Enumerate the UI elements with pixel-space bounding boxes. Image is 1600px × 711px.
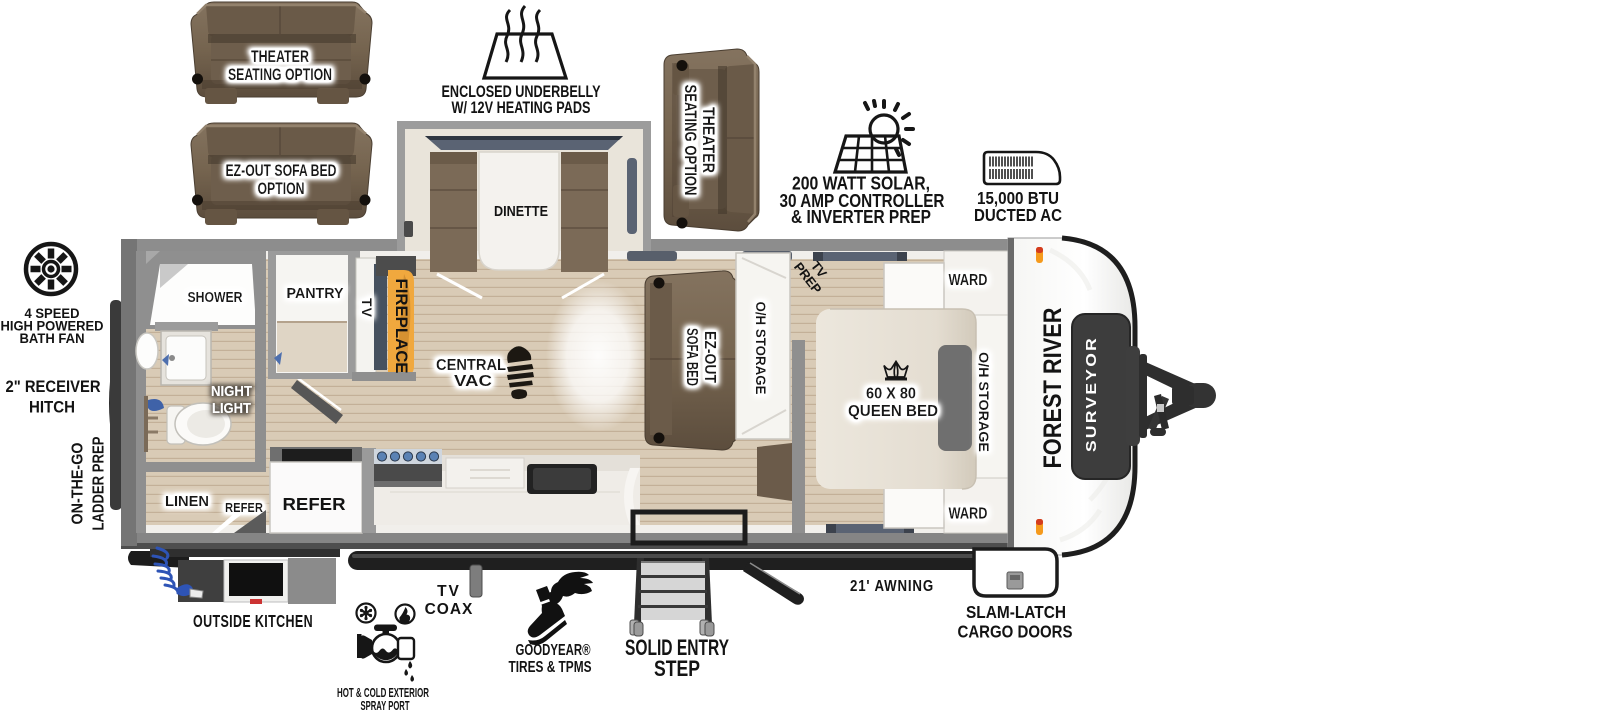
svg-text:DINETTE: DINETTE xyxy=(494,203,548,220)
svg-text:CARGO DOORS: CARGO DOORS xyxy=(958,622,1073,642)
svg-text:REFER: REFER xyxy=(225,501,263,515)
svg-text:REFER: REFER xyxy=(283,494,346,514)
svg-text:SEATING OPTION: SEATING OPTION xyxy=(228,65,332,84)
svg-text:PANTRY: PANTRY xyxy=(287,285,344,302)
svg-text:WARD: WARD xyxy=(949,272,988,289)
svg-text:EZ-OUT SOFA BED: EZ-OUT SOFA BED xyxy=(226,161,337,180)
svg-text:TIRES & TPMS: TIRES & TPMS xyxy=(509,659,592,676)
svg-text:HITCH: HITCH xyxy=(29,399,75,417)
svg-text:LINEN: LINEN xyxy=(165,493,209,510)
svg-text:OUTSIDE KITCHEN: OUTSIDE KITCHEN xyxy=(193,611,313,631)
svg-text:HOT & COLD EXTERIOR: HOT & COLD EXTERIOR xyxy=(337,686,429,700)
svg-text:THEATER: THEATER xyxy=(251,47,309,66)
svg-text:EZ-OUT: EZ-OUT xyxy=(701,331,718,383)
svg-text:TV: TV xyxy=(359,298,375,318)
svg-text:STEP: STEP xyxy=(654,656,700,681)
svg-text:TV: TV xyxy=(437,583,461,600)
svg-text:LIGHT: LIGHT xyxy=(212,400,251,417)
svg-text:SEATING OPTION: SEATING OPTION xyxy=(681,85,700,196)
svg-text:O/H STORAGE: O/H STORAGE xyxy=(753,302,769,395)
svg-text:2" RECEIVER: 2" RECEIVER xyxy=(6,378,101,396)
svg-text:SLAM-LATCH: SLAM-LATCH xyxy=(966,602,1066,622)
svg-text:O/H STORAGE: O/H STORAGE xyxy=(976,352,992,452)
svg-text:SHOWER: SHOWER xyxy=(188,290,243,306)
svg-text:LADDER PREP: LADDER PREP xyxy=(91,436,108,530)
svg-text:DUCTED AC: DUCTED AC xyxy=(974,205,1062,225)
svg-text:SOFA BED: SOFA BED xyxy=(683,328,700,386)
svg-text:FIREPLACE: FIREPLACE xyxy=(392,279,410,374)
svg-text:BATH FAN: BATH FAN xyxy=(20,331,85,346)
svg-text:21' AWNING: 21' AWNING xyxy=(850,578,934,595)
svg-text:COAX: COAX xyxy=(425,601,474,618)
svg-text:SURVEYOR: SURVEYOR xyxy=(1083,336,1100,452)
svg-text:FOREST RIVER: FOREST RIVER xyxy=(1039,308,1067,469)
svg-text:60 X 80: 60 X 80 xyxy=(866,386,916,403)
svg-text:WARD: WARD xyxy=(949,506,988,523)
svg-text:QUEEN BED: QUEEN BED xyxy=(848,403,938,420)
svg-text:NIGHT: NIGHT xyxy=(211,383,252,400)
svg-text:CENTRAL: CENTRAL xyxy=(436,357,506,374)
svg-text:ON-THE-GO: ON-THE-GO xyxy=(70,443,87,525)
svg-text:W/ 12V HEATING PADS: W/ 12V HEATING PADS xyxy=(452,99,591,117)
svg-text:VAC: VAC xyxy=(454,373,493,390)
svg-text:THEATER: THEATER xyxy=(699,107,718,173)
svg-text:SPRAY PORT: SPRAY PORT xyxy=(361,699,410,711)
svg-text:& INVERTER PREP: & INVERTER PREP xyxy=(791,206,931,227)
svg-text:OPTION: OPTION xyxy=(258,179,305,198)
svg-text:GOODYEAR®: GOODYEAR® xyxy=(516,642,591,659)
